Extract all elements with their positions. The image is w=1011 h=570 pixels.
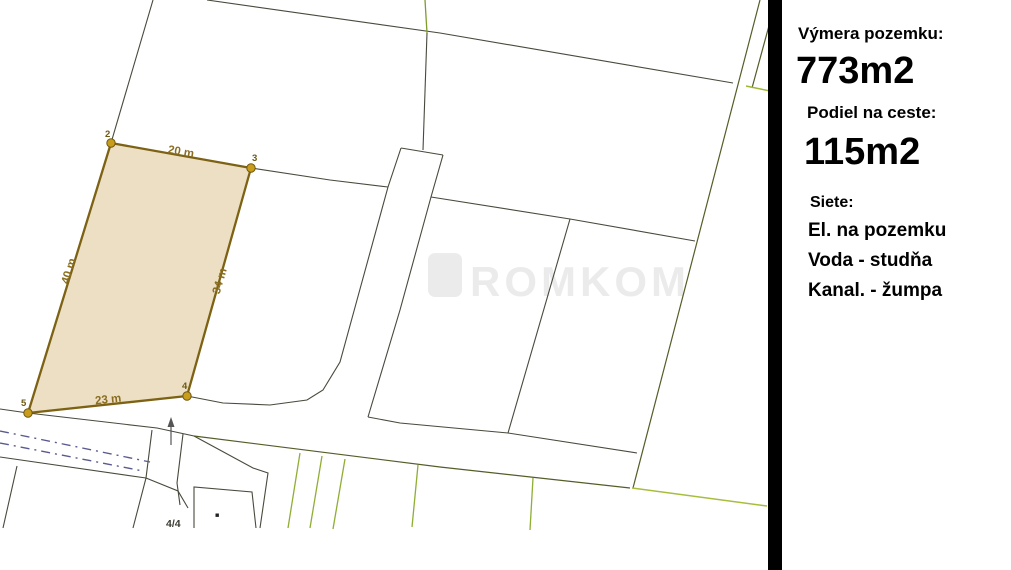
- north-arrow-head-icon: [168, 417, 175, 427]
- fence-line: [530, 478, 533, 530]
- fence-line: [333, 459, 345, 529]
- fence-lines: [288, 453, 533, 530]
- boundary-line: [207, 0, 733, 83]
- plot-vertex-4: [183, 392, 191, 400]
- lane-top-edge: [401, 148, 443, 155]
- olive-boundaries: [194, 0, 769, 488]
- road-south-edge: [194, 436, 630, 488]
- boundary-line: [508, 219, 570, 433]
- boundary-line: [146, 478, 188, 508]
- plot-vertex-2: [107, 139, 115, 147]
- divider-bar: [768, 0, 782, 570]
- building-point: [216, 514, 219, 517]
- boundary-line: [431, 197, 695, 241]
- cadastral-map-drawing: ROMKOM: [0, 0, 769, 570]
- utility-sewage: Kanal. - žumpa: [808, 280, 942, 302]
- highlighted-plot: 2 3 4 5 20 m 34 m 40 m 23 m: [21, 129, 257, 417]
- watermark-text: ROMKOM: [470, 258, 690, 305]
- building-outline: [194, 487, 256, 528]
- vertex-label-5: 5: [21, 398, 27, 409]
- boundary-line: [632, 488, 767, 506]
- boundary-line: [111, 0, 153, 143]
- boundary-line: [425, 0, 427, 33]
- boundary-line: [752, 22, 769, 88]
- boundary-line: [746, 86, 769, 91]
- plot-vertex-3: [247, 164, 255, 172]
- dimension-bottom: 23 m: [95, 393, 122, 408]
- road-share-label: Podiel na ceste:: [807, 103, 936, 123]
- utility-electricity: El. na pozemku: [808, 220, 946, 242]
- parcel-number-label: 4/4: [166, 518, 181, 530]
- road-share-value: 115m2: [804, 131, 920, 174]
- utility-water: Voda - studňa: [808, 250, 932, 272]
- road-north-edge: [368, 417, 637, 453]
- fence-line: [288, 453, 300, 528]
- listing-screenshot: ROMKOM: [0, 0, 1011, 570]
- boundary-line: [633, 0, 760, 488]
- fence-line: [412, 465, 418, 527]
- boundary-line: [423, 33, 427, 150]
- info-panel: Výmera pozemku: 773m2 Podiel na ceste: 1…: [782, 0, 1011, 570]
- boundary-line: [3, 466, 17, 528]
- area-value: 773m2: [796, 50, 914, 93]
- road-axis-line: [0, 431, 150, 462]
- vertex-label-3: 3: [252, 153, 257, 164]
- boundary-line: [251, 168, 388, 187]
- boundary-line: [194, 436, 268, 528]
- cadastral-map: ROMKOM: [0, 0, 769, 570]
- vertex-label-4: 4: [182, 381, 188, 392]
- watermark: ROMKOM: [428, 253, 690, 305]
- utilities-label: Siete:: [810, 194, 854, 212]
- fence-line: [310, 456, 322, 528]
- road-axis-lines: [0, 431, 150, 471]
- watermark-logo-icon: [428, 253, 462, 297]
- vertex-label-2: 2: [105, 129, 110, 140]
- area-label: Výmera pozemku:: [798, 24, 944, 44]
- plot-vertex-5: [24, 409, 32, 417]
